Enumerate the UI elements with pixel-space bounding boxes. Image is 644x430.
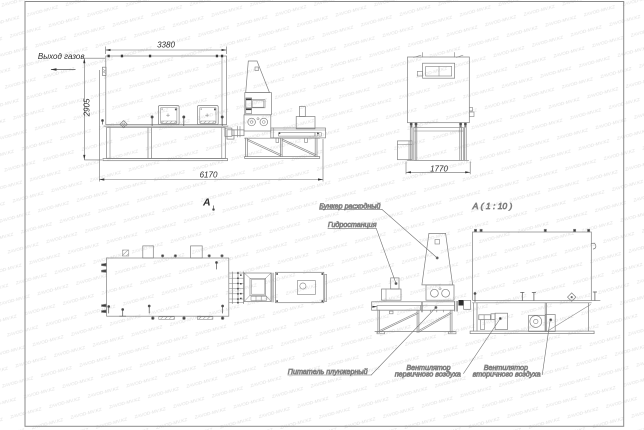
svg-text:3380: 3380	[157, 40, 175, 49]
svg-text:Выход газов: Выход газов	[38, 52, 85, 61]
svg-text:1770: 1770	[430, 164, 448, 173]
svg-text:А: А	[202, 197, 211, 209]
svg-text:вторичного воздуха: вторичного воздуха	[473, 370, 541, 378]
svg-text:А ( 1 : 10 ): А ( 1 : 10 )	[472, 201, 513, 211]
svg-text:2905: 2905	[83, 98, 92, 117]
svg-text:первичного воздуха: первичного воздуха	[395, 370, 461, 378]
svg-text:6170: 6170	[200, 170, 218, 179]
svg-text:Питатель плунжерный: Питатель плунжерный	[288, 368, 368, 376]
